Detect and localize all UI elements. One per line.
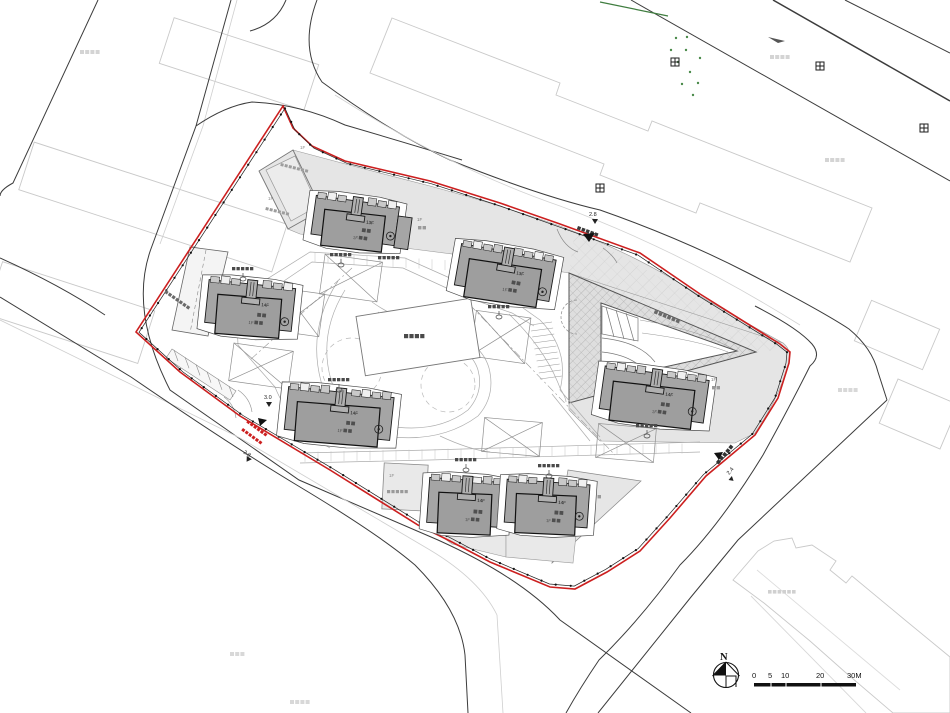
svg-text:5: 5 xyxy=(768,671,772,680)
svg-text:1F: 1F xyxy=(546,518,552,523)
svg-text:1F: 1F xyxy=(389,473,395,478)
svg-text:1F: 1F xyxy=(352,235,358,241)
svg-text:2.8: 2.8 xyxy=(589,212,597,218)
svg-text:1F: 1F xyxy=(465,517,471,522)
svg-text:1F: 1F xyxy=(711,377,717,382)
svg-text:30M: 30M xyxy=(847,671,862,680)
svg-text:10: 10 xyxy=(781,671,789,680)
svg-text:14F: 14F xyxy=(261,302,269,308)
svg-text:1F: 1F xyxy=(651,409,657,415)
svg-text:3.0: 3.0 xyxy=(264,395,272,401)
svg-text:N: N xyxy=(720,652,728,663)
svg-text:14F: 14F xyxy=(558,500,566,506)
svg-text:1F: 1F xyxy=(268,196,274,201)
svg-text:1F: 1F xyxy=(417,217,423,222)
svg-text:14F: 14F xyxy=(477,498,485,504)
svg-text:20: 20 xyxy=(816,671,824,680)
svg-text:1F: 1F xyxy=(337,428,343,434)
svg-text:1F: 1F xyxy=(248,320,254,326)
svg-text:1F: 1F xyxy=(300,145,306,150)
svg-text:14F: 14F xyxy=(350,410,358,416)
svg-text:0: 0 xyxy=(752,671,756,680)
